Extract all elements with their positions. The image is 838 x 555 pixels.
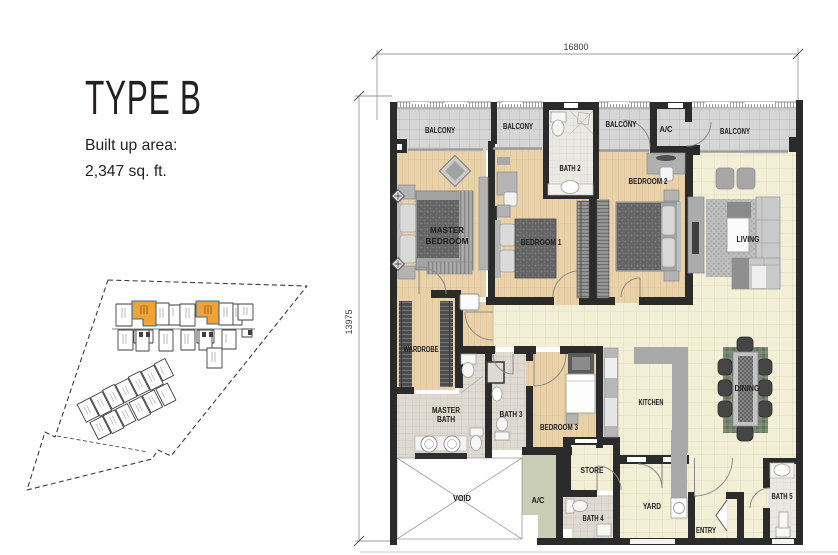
svg-text:LIVING: LIVING — [737, 234, 760, 244]
svg-text:2,347 sq. ft.: 2,347 sq. ft. — [85, 163, 167, 180]
svg-text:BALCONY: BALCONY — [720, 126, 750, 136]
svg-text:BALCONY: BALCONY — [425, 125, 455, 135]
svg-text:A/C: A/C — [660, 124, 674, 134]
svg-text:A/C: A/C — [532, 495, 546, 505]
svg-text:BEDROOM 3: BEDROOM 3 — [540, 422, 578, 432]
svg-text:ENTRY: ENTRY — [696, 525, 716, 535]
svg-text:BATH 5: BATH 5 — [772, 491, 793, 501]
svg-text:BEDROOM: BEDROOM — [426, 236, 469, 246]
svg-text:YARD: YARD — [643, 501, 661, 511]
svg-text:16800: 16800 — [563, 42, 588, 52]
svg-text:BATH: BATH — [437, 414, 455, 424]
svg-text:BATH 3: BATH 3 — [500, 409, 523, 419]
svg-text:DINING: DINING — [735, 383, 760, 393]
svg-text:BEDROOM 1: BEDROOM 1 — [521, 237, 562, 247]
svg-text:TYPE B: TYPE B — [85, 70, 202, 124]
svg-text:WARDROBE: WARDROBE — [404, 344, 439, 354]
svg-text:Built up area:: Built up area: — [85, 137, 177, 154]
svg-text:MASTER: MASTER — [430, 225, 465, 235]
svg-text:BALCONY: BALCONY — [606, 119, 637, 129]
svg-text:BALCONY: BALCONY — [503, 121, 533, 131]
svg-text:BEDROOM 2: BEDROOM 2 — [629, 176, 668, 186]
svg-text:13975: 13975 — [344, 309, 354, 334]
svg-text:STORE: STORE — [581, 465, 604, 475]
svg-text:BATH 4: BATH 4 — [583, 513, 604, 523]
svg-text:BATH 2: BATH 2 — [560, 163, 581, 173]
svg-text:VOID: VOID — [453, 493, 471, 503]
svg-text:KITCHEN: KITCHEN — [639, 397, 664, 407]
